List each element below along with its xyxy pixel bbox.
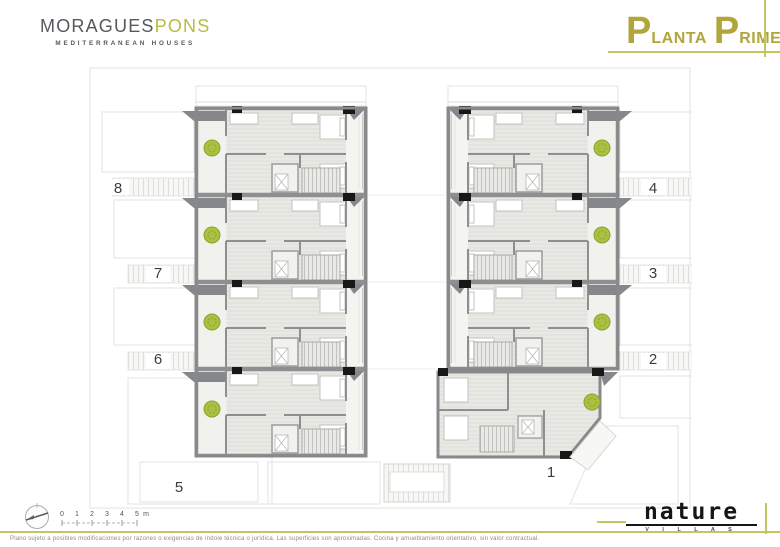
brand-logo: MORAGUESPONS MEDITERRANEAN HOUSES: [40, 16, 210, 47]
page-title: PLANTAPRIMERA: [626, 10, 766, 53]
building-east: [448, 106, 632, 369]
logo-left-rule: [597, 521, 626, 523]
scale-tick-1: 1: [75, 511, 79, 518]
legal-disclaimer: Plano sujeto a posibles modificaciones p…: [10, 536, 539, 542]
title-initial-1: P: [626, 10, 651, 53]
brand-subtitle: MEDITERRANEAN HOUSES: [40, 40, 210, 47]
unit-label-1: 1: [547, 464, 555, 481]
brochure-page: MORAGUESPONS MEDITERRANEAN HOUSES PLANTA…: [0, 0, 780, 547]
logo-right-rule: [765, 503, 767, 534]
unit-label-8: 8: [114, 180, 122, 197]
scale-unit: m: [143, 511, 149, 518]
brand-name-part1: MORAGUES: [40, 16, 155, 36]
floor-plan-drawing: 8 7 6 5 4 3 2 1: [88, 66, 692, 512]
developer-logo: nature V I L L A S: [626, 501, 757, 533]
unit-label-3: 3: [649, 265, 657, 282]
developer-logo-name: nature: [626, 501, 757, 526]
title-rest-1: LANTA: [651, 30, 707, 48]
brand-name-part2: PONS: [155, 16, 211, 36]
title-vertical-rule: [764, 0, 766, 57]
building-west: [182, 106, 366, 456]
title-rest-2: RIMERA: [739, 30, 780, 48]
title-initial-2: P: [714, 10, 739, 53]
scale-tick-2: 2: [90, 511, 94, 518]
developer-logo-subtitle: V I L L A S: [626, 527, 757, 533]
title-underline: [608, 51, 780, 53]
floor-plan: 8 7 6 5 4 3 2 1: [88, 66, 692, 512]
unit-label-5: 5: [175, 479, 183, 496]
scale-tick-0: 0: [60, 511, 64, 518]
unit-label-4: 4: [649, 180, 657, 197]
brand-name: MORAGUESPONS: [40, 16, 210, 37]
tree-icon: [584, 394, 600, 410]
scale-tick-5: 5: [135, 511, 139, 518]
scale-tick-3: 3: [105, 511, 109, 518]
unit-label-7: 7: [154, 265, 162, 282]
unit-1-module: [438, 368, 618, 470]
scale-tick-4: 4: [120, 511, 124, 518]
unit-label-6: 6: [154, 351, 162, 368]
unit-label-2: 2: [649, 351, 657, 368]
central-stair: [384, 464, 450, 502]
